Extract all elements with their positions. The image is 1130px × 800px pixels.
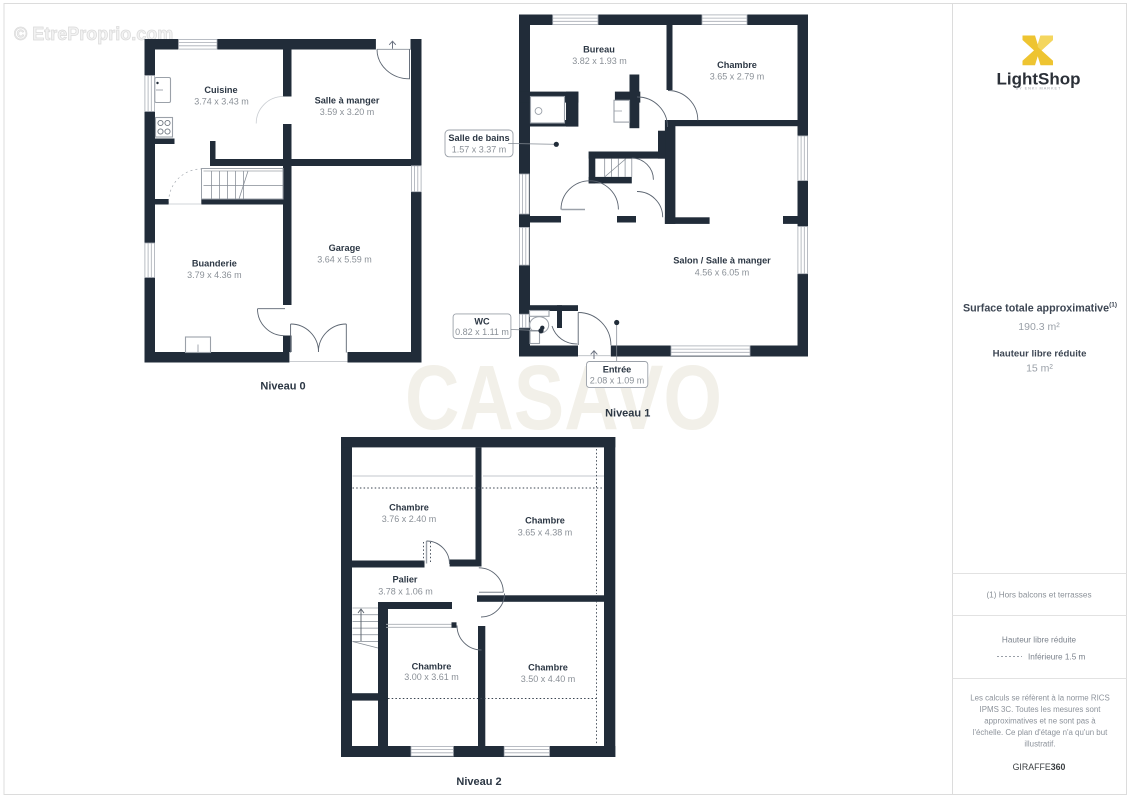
svg-text:illustratif.: illustratif. bbox=[1024, 740, 1055, 749]
svg-text:Salle à manger: Salle à manger bbox=[315, 96, 380, 106]
svg-text:Les calculs se réfèrent à la n: Les calculs se réfèrent à la norme RICS bbox=[970, 694, 1109, 703]
svg-text:WC: WC bbox=[474, 316, 490, 326]
svg-text:approximatives et ne sont pas: approximatives et ne sont pas à bbox=[984, 717, 1096, 726]
svg-text:4.56 x 6.05 m: 4.56 x 6.05 m bbox=[695, 268, 750, 278]
svg-text:Niveau 2: Niveau 2 bbox=[456, 776, 501, 788]
svg-text:Palier: Palier bbox=[392, 575, 417, 585]
svg-text:IPMS 3C. Toutes les mesures so: IPMS 3C. Toutes les mesures sont bbox=[980, 705, 1102, 714]
svg-text:3.00 x 3.61 m: 3.00 x 3.61 m bbox=[404, 672, 459, 682]
svg-text:3.76 x 2.40 m: 3.76 x 2.40 m bbox=[382, 514, 437, 524]
svg-text:Buanderie: Buanderie bbox=[192, 259, 237, 269]
svg-text:Hauteur libre réduite: Hauteur libre réduite bbox=[1002, 636, 1077, 645]
svg-text:2.08 x 1.09 m: 2.08 x 1.09 m bbox=[590, 376, 645, 386]
svg-text:Garage: Garage bbox=[329, 243, 361, 253]
svg-text:Inférieure 1.5 m: Inférieure 1.5 m bbox=[1028, 652, 1086, 661]
svg-text:3.50 x 4.40 m: 3.50 x 4.40 m bbox=[521, 674, 576, 684]
svg-text:3.82 x 1.93 m: 3.82 x 1.93 m bbox=[572, 56, 627, 66]
svg-text:(1) Hors balcons et terrasses: (1) Hors balcons et terrasses bbox=[986, 591, 1091, 600]
svg-text:l'échelle. Ce plan d'étage n'a: l'échelle. Ce plan d'étage n'a qu'un but bbox=[973, 728, 1108, 737]
svg-text:Surface totale approximative(1: Surface totale approximative(1) bbox=[963, 302, 1117, 315]
svg-text:Cuisine: Cuisine bbox=[204, 85, 237, 95]
svg-text:3.79 x 4.36 m: 3.79 x 4.36 m bbox=[187, 270, 242, 280]
svg-text:15 m²: 15 m² bbox=[1026, 363, 1053, 375]
svg-text:GIRAFFE360: GIRAFFE360 bbox=[1013, 762, 1066, 772]
svg-text:BY ENKI MARKET: BY ENKI MARKET bbox=[1016, 87, 1062, 91]
svg-text:Entrée: Entrée bbox=[603, 364, 632, 374]
svg-text:Salle de bains: Salle de bains bbox=[448, 133, 509, 143]
svg-text:3.59 x 3.20 m: 3.59 x 3.20 m bbox=[320, 107, 375, 117]
svg-text:Chambre: Chambre bbox=[528, 663, 568, 673]
svg-text:0.82 x 1.11 m: 0.82 x 1.11 m bbox=[455, 327, 509, 337]
svg-text:Niveau 1: Niveau 1 bbox=[605, 408, 650, 420]
svg-text:Niveau 0: Niveau 0 bbox=[260, 381, 305, 393]
svg-text:Chambre: Chambre bbox=[389, 503, 429, 513]
svg-text:190.3 m²: 190.3 m² bbox=[1018, 321, 1060, 333]
svg-text:3.74 x 3.43 m: 3.74 x 3.43 m bbox=[194, 97, 249, 107]
svg-text:Chambre: Chambre bbox=[525, 516, 565, 526]
svg-text:3.65 x 2.79 m: 3.65 x 2.79 m bbox=[710, 71, 765, 81]
svg-text:3.64 x 5.59 m: 3.64 x 5.59 m bbox=[317, 255, 372, 265]
svg-text:1.57 x 3.37 m: 1.57 x 3.37 m bbox=[452, 144, 507, 154]
svg-text:Salon / Salle à manger: Salon / Salle à manger bbox=[673, 256, 771, 266]
svg-text:3.78 x 1.06 m: 3.78 x 1.06 m bbox=[378, 587, 433, 597]
svg-text:Hauteur libre réduite: Hauteur libre réduite bbox=[993, 349, 1087, 360]
svg-text:Chambre: Chambre bbox=[412, 662, 452, 672]
svg-text:CASAVO: CASAVO bbox=[405, 346, 722, 449]
svg-text:Bureau: Bureau bbox=[583, 45, 615, 55]
svg-text:Chambre: Chambre bbox=[717, 60, 757, 70]
svg-text:3.65 x 4.38 m: 3.65 x 4.38 m bbox=[518, 528, 573, 538]
